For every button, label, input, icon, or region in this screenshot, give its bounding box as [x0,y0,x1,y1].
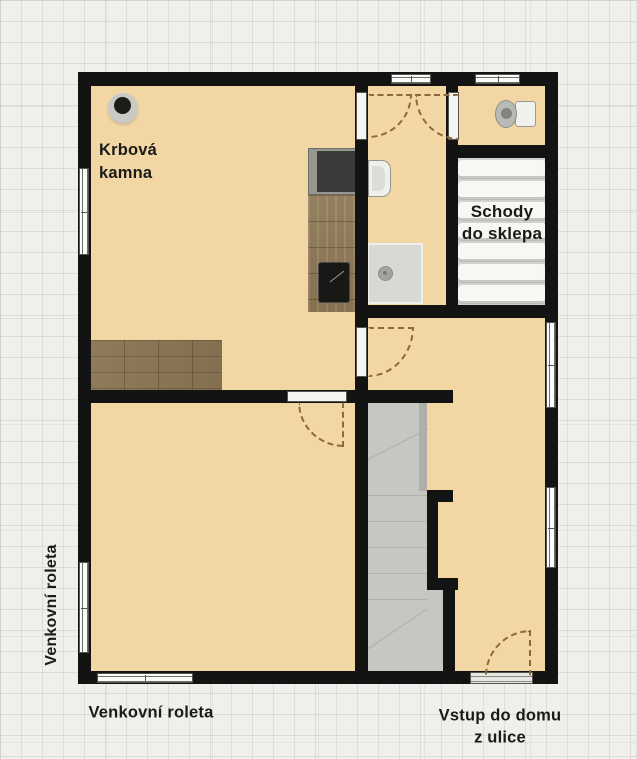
stair-tread [458,160,546,178]
toilet-bowl-inner [501,108,512,119]
stair-tread-line [366,599,427,600]
stair-tread-line [366,521,427,522]
stair-winder-line [364,609,428,652]
toilet-icon [495,100,517,128]
wall-bathroom-bottom [355,305,558,318]
basement-stairs-label: Schody do sklepa [458,201,546,245]
wall-stairwell-side [427,490,438,590]
basement-stairs-label-line1: Schody [458,201,546,223]
left-shutter-label: Venkovní roleta [43,544,61,665]
stair-tread-line [366,495,427,496]
stair-railing [419,403,427,491]
window-left-1 [79,168,89,255]
window-right-1 [546,322,556,408]
stairs-up-landing [427,590,443,671]
stair-tread [458,285,546,303]
fireplace-label: Krbová kamna [99,139,157,185]
fireplace-label-line1: Krbová [99,139,157,162]
washbasin-icon [368,160,391,197]
window-top-1 [391,74,431,84]
shower-head-icon [378,266,393,281]
bar-counter [90,340,222,390]
wall-entry-side [443,590,455,671]
faucet-icon [330,271,345,283]
stairs-up [366,403,427,671]
floor-plan: Krbová kamna Schody do sklepa Venkovní r… [0,0,637,759]
stair-tread-line [366,573,427,574]
stair-tread [458,243,546,261]
stair-tread [458,264,546,282]
basement-stairs-label-line2: do sklepa [458,223,546,245]
door-jamb-living-hall [356,327,367,377]
window-right-2 [546,487,556,568]
stair-tread [458,181,546,199]
window-top-2 [475,74,520,84]
bottom-shutter-label: Venkovní roleta [89,704,214,723]
wall-wc-stairs-divider [458,145,546,158]
door-jamb-living-bathroom [356,92,367,140]
entrance-label-line1: Vstup do domu [439,706,562,728]
toilet-tank-icon [515,101,536,127]
shower-icon [367,243,423,304]
wall-stairwell-stub-bottom [427,578,458,590]
door-jamb-living-room2 [287,391,347,402]
stair-tread-line [366,547,427,548]
wall-middle-horizontal [78,390,453,403]
window-bottom [97,673,193,683]
entrance-label: Vstup do domu z ulice [439,706,562,749]
fireplace-stove-icon [108,93,138,123]
stove-top [317,151,355,192]
window-left-2 [79,562,89,653]
kitchen-stove-icon [308,148,357,195]
fireplace-label-line2: kamna [99,162,157,185]
kitchen-sink-icon [318,262,350,303]
entrance-label-line2: z ulice [439,727,562,749]
fireplace-core [114,97,131,114]
wall-center-vertical [355,86,368,671]
